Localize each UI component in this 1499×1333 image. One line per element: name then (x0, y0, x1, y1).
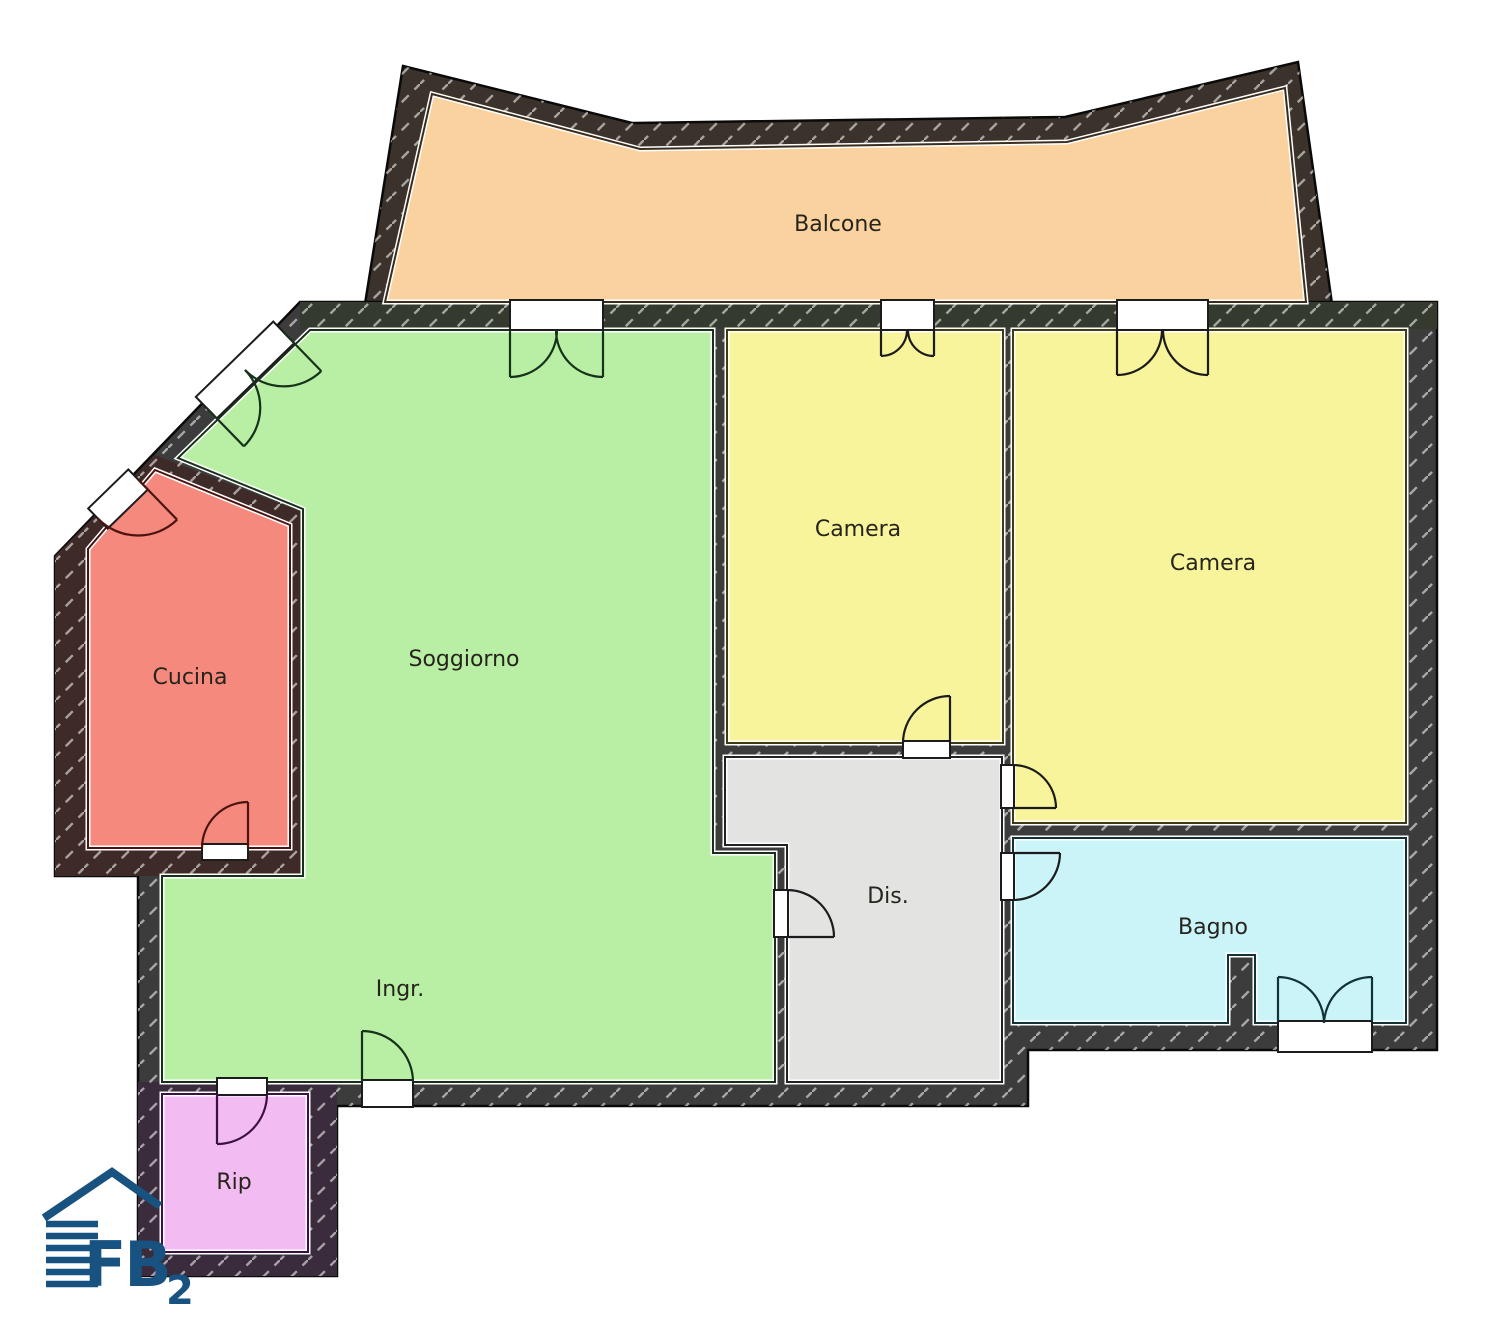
label-rip: Rip (216, 1170, 251, 1195)
room-camera-2 (1013, 330, 1406, 823)
french-door-camera-2-balcone (1117, 300, 1208, 330)
door-cucina-threshold (202, 844, 248, 860)
label-camera-2: Camera (1170, 551, 1256, 576)
rooms (88, 88, 1406, 1252)
label-cucina: Cucina (153, 665, 228, 690)
label-dis: Dis. (867, 884, 909, 909)
entrance-door-threshold (362, 1080, 413, 1107)
door-rip-threshold (217, 1078, 267, 1095)
room-cucina (88, 470, 290, 848)
label-balcone: Balcone (794, 212, 882, 237)
door-camera-2-threshold (1001, 765, 1014, 808)
logo-subscript: 2 (166, 1268, 194, 1314)
door-dis-threshold (774, 890, 788, 937)
label-camera-1: Camera (815, 517, 901, 542)
room-cucina-floor (88, 470, 290, 848)
floor-plan-page: Balcone Soggiorno Cucina Camera Camera D… (0, 0, 1499, 1333)
door-bagno-threshold (1001, 853, 1014, 900)
label-ingresso: Ingr. (376, 977, 424, 1002)
floor-plan-svg: Balcone Soggiorno Cucina Camera Camera D… (0, 0, 1499, 1333)
logo-letters: FB (84, 1228, 170, 1301)
room-camera-2-floor (1013, 330, 1406, 823)
french-door-soggiorno-balcone (510, 300, 603, 330)
window-bagno (1278, 1021, 1372, 1052)
door-camera-1-threshold (903, 741, 950, 758)
label-bagno: Bagno (1178, 915, 1248, 940)
label-soggiorno: Soggiorno (409, 647, 520, 672)
french-door-camera-1-balcone (881, 300, 934, 330)
